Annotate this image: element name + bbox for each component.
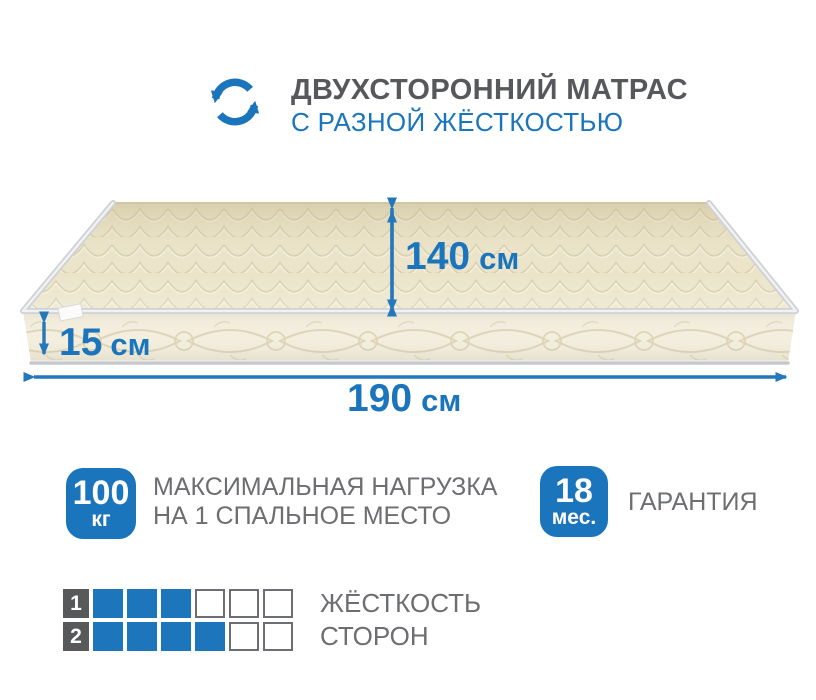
firmness-caption-line1: ЖЁСТКОСТЬ bbox=[320, 587, 481, 620]
firmness-cell-filled bbox=[93, 622, 123, 651]
firmness-row: 1 bbox=[63, 589, 297, 618]
firmness-cell-empty bbox=[263, 589, 293, 618]
firmness-side-number: 1 bbox=[63, 589, 89, 618]
max-load-caption: МАКСИМАЛЬНАЯ НАГРУЗКА НА 1 СПАЛЬНОЕ МЕСТ… bbox=[153, 473, 497, 531]
warranty-value: 18 bbox=[555, 475, 593, 507]
firmness-caption: ЖЁСТКОСТЬ СТОРОН bbox=[320, 587, 481, 653]
header-titles: ДВУХСТОРОННИЙ МАТРАС С РАЗНОЙ ЖЁСТКОСТЬЮ bbox=[291, 74, 688, 137]
dimension-depth-label: 140см bbox=[405, 235, 519, 278]
firmness-grid: 12 bbox=[63, 589, 297, 655]
firmness-cell-empty bbox=[229, 589, 259, 618]
firmness-cell-empty bbox=[229, 622, 259, 651]
page-title: ДВУХСТОРОННИЙ МАТРАС bbox=[291, 74, 688, 107]
mattress-illustration: 140см 15см 190см bbox=[0, 165, 816, 435]
firmness-cell-filled bbox=[195, 622, 225, 651]
firmness-cell-filled bbox=[93, 589, 123, 618]
max-load-caption-line1: МАКСИМАЛЬНАЯ НАГРУЗКА bbox=[153, 473, 497, 502]
firmness-cell-filled bbox=[161, 589, 191, 618]
firmness-cell-filled bbox=[127, 589, 157, 618]
max-load-unit: кг bbox=[91, 509, 110, 531]
firmness-cell-filled bbox=[161, 622, 191, 651]
rotate-arrows-icon bbox=[204, 72, 266, 132]
page-subtitle: С РАЗНОЙ ЖЁСТКОСТЬЮ bbox=[291, 107, 688, 137]
warranty-caption: ГАРАНТИЯ bbox=[628, 488, 758, 517]
firmness-cell-empty bbox=[263, 622, 293, 651]
max-load-value: 100 bbox=[73, 477, 130, 509]
dimension-length-label: 190см bbox=[347, 377, 461, 420]
firmness-cell-empty bbox=[195, 589, 225, 618]
warranty-unit: мес. bbox=[552, 507, 596, 529]
warranty-badge: 18 мес. bbox=[540, 466, 608, 537]
firmness-caption-line2: СТОРОН bbox=[320, 620, 481, 653]
max-load-caption-line2: НА 1 СПАЛЬНОЕ МЕСТО bbox=[153, 502, 497, 531]
warranty-caption-line1: ГАРАНТИЯ bbox=[628, 488, 758, 517]
firmness-row: 2 bbox=[63, 622, 297, 651]
max-load-badge: 100 кг bbox=[66, 468, 136, 539]
firmness-cell-filled bbox=[127, 622, 157, 651]
firmness-side-number: 2 bbox=[63, 622, 89, 651]
